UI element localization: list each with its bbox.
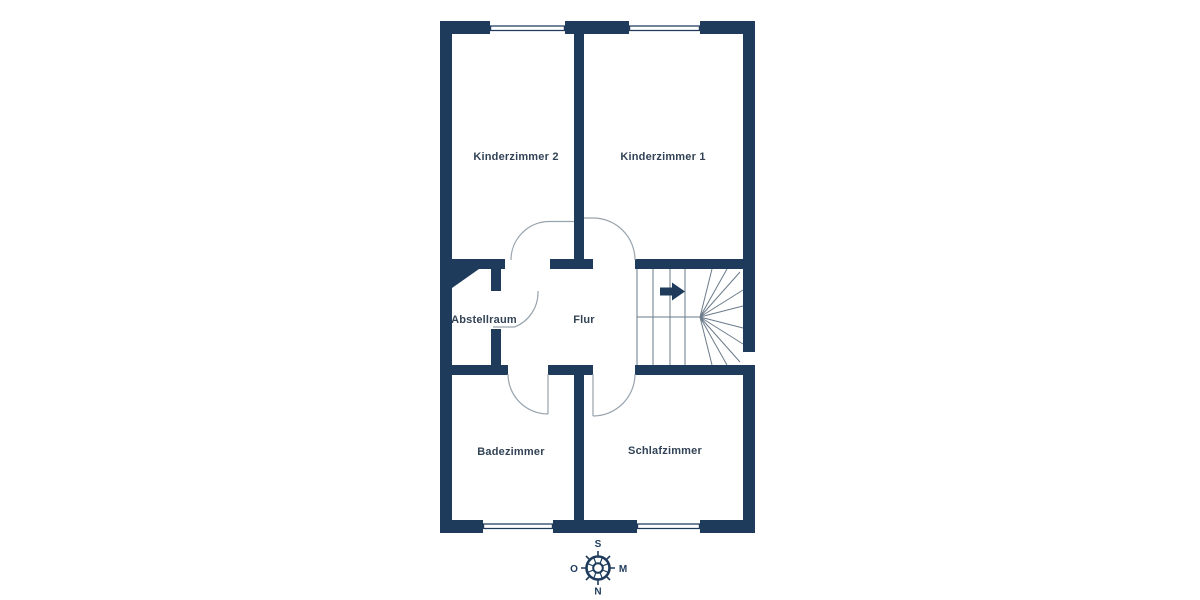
window-gap: [629, 19, 700, 36]
wall-hall-top-right: [635, 259, 743, 269]
door-arc-schlafzimmer: [593, 374, 635, 416]
wall-hall-bottom-mid: [548, 365, 593, 375]
wall-hall-top-left: [452, 259, 505, 269]
door-arc-kinderzimmer-1: [584, 218, 635, 260]
wall-top: [440, 21, 755, 34]
room-label-abstellraum: Abstellraum: [451, 314, 517, 326]
stair-winders-upper: [700, 269, 743, 317]
compass-south-label: S: [595, 539, 602, 550]
staircase: [637, 269, 743, 365]
room-label-kinderzimmer-2: Kinderzimmer 2: [473, 151, 558, 163]
compass-west-label: M: [619, 564, 627, 575]
wall-hall-bottom-right: [635, 365, 755, 375]
wall-abstellraum-upper: [491, 269, 501, 291]
room-label-kinderzimmer-1: Kinderzimmer 1: [620, 151, 705, 163]
wall-center-upper: [574, 34, 584, 260]
compass-wheel-icon: [581, 551, 615, 585]
compass-rose: S M N O: [570, 539, 627, 598]
compass-north-label: N: [594, 587, 601, 598]
compass-east-label: O: [570, 564, 578, 575]
wall-center-lower: [574, 373, 584, 520]
room-label-schlafzimmer: Schlafzimmer: [628, 445, 702, 457]
wall-hall-top-mid: [550, 259, 593, 269]
window-gap: [490, 19, 565, 36]
wall-right-upper: [743, 21, 755, 352]
wall-hall-bottom-left: [452, 365, 508, 375]
stair-winders-lower: [700, 317, 743, 365]
compass-outer-ring: [587, 557, 610, 580]
door-arc-kinderzimmer-2: [511, 222, 574, 261]
wall-abstellraum-lower: [491, 329, 501, 365]
room-label-flur: Flur: [573, 314, 595, 326]
wall-right-lower: [743, 365, 755, 533]
compass-outer-spokes: [581, 551, 615, 585]
window-gap: [483, 518, 553, 535]
door-arc-badezimmer: [508, 374, 548, 414]
compass-hub: [593, 563, 603, 573]
room-label-badezimmer: Badezimmer: [477, 446, 545, 458]
wall-chamfer: [452, 269, 479, 288]
floor-plan: Kinderzimmer 2 Kinderzimmer 1 Abstellrau…: [0, 0, 1200, 600]
stairs-direction-arrow-icon: [660, 283, 685, 301]
window-gap: [637, 518, 700, 535]
floor-plan-canvas: Kinderzimmer 2 Kinderzimmer 1 Abstellrau…: [0, 0, 1200, 600]
wall-left: [440, 21, 452, 533]
